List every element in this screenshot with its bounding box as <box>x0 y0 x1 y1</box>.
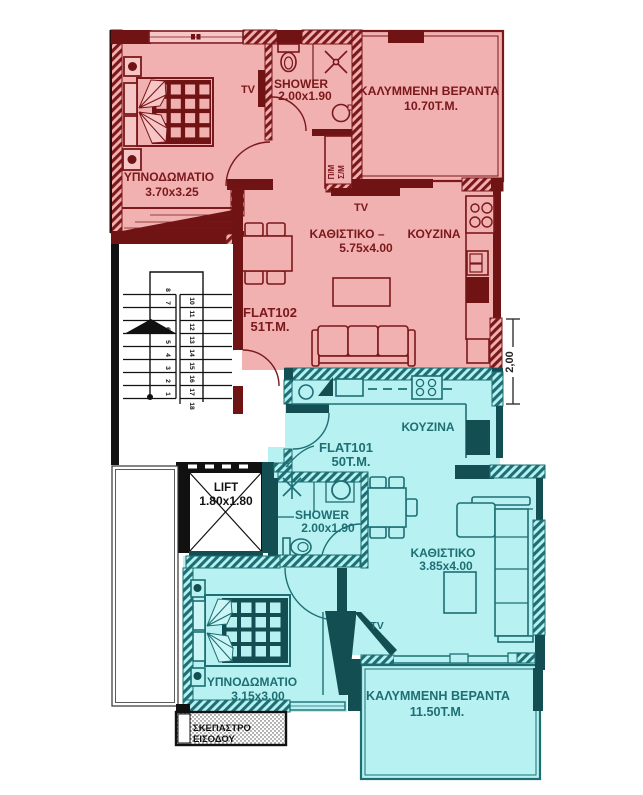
svg-text:5: 5 <box>164 340 171 344</box>
svg-text:TV: TV <box>370 620 383 632</box>
svg-text:12: 12 <box>188 323 195 331</box>
svg-text:10.70Τ.Μ.: 10.70Τ.Μ. <box>404 99 458 113</box>
svg-text:15: 15 <box>188 362 195 370</box>
svg-text:ΚΑΛΥΜΜΕΝΗ ΒΕΡΑΝΤΑ: ΚΑΛΥΜΜΕΝΗ ΒΕΡΑΝΤΑ <box>359 84 500 98</box>
svg-text:3.70x3.25: 3.70x3.25 <box>145 185 199 199</box>
svg-text:51Τ.Μ.: 51Τ.Μ. <box>250 319 289 334</box>
svg-text:2: 2 <box>164 379 171 383</box>
svg-text:17: 17 <box>188 388 195 396</box>
svg-text:ΣΚΕΠΑΣΤΡΟ: ΣΚΕΠΑΣΤΡΟ <box>193 723 251 734</box>
svg-text:5.75x4.00: 5.75x4.00 <box>339 241 393 255</box>
svg-text:ΕΙΣΟΔΟΥ: ΕΙΣΟΔΟΥ <box>193 734 236 745</box>
svg-text:Σ/Μ: Σ/Μ <box>337 165 346 179</box>
svg-text:16: 16 <box>188 375 195 383</box>
svg-text:11.50Τ.Μ.: 11.50Τ.Μ. <box>410 705 465 719</box>
svg-text:ΚΑΘΙΣΤΙΚΟ –: ΚΑΘΙΣΤΙΚΟ – <box>310 227 385 241</box>
svg-text:TV: TV <box>241 84 256 96</box>
svg-text:ΥΠΝΟΔΩΜΑΤΙΟ: ΥΠΝΟΔΩΜΑΤΙΟ <box>124 170 214 184</box>
svg-text:8: 8 <box>164 288 171 292</box>
svg-text:18: 18 <box>188 402 195 410</box>
svg-text:FLAT102: FLAT102 <box>243 305 297 320</box>
svg-text:SHOWER: SHOWER <box>295 508 349 522</box>
svg-text:6: 6 <box>164 327 171 331</box>
svg-text:4: 4 <box>164 353 171 357</box>
svg-text:ΥΠΝΟΔΩΜΑΤΙΟ: ΥΠΝΟΔΩΜΑΤΙΟ <box>207 675 297 689</box>
svg-text:ΚΑΛΥΜΜΕΝΗ ΒΕΡΑΝΤΑ: ΚΑΛΥΜΜΕΝΗ ΒΕΡΑΝΤΑ <box>366 689 510 703</box>
svg-text:3: 3 <box>164 366 171 370</box>
svg-text:Π/Μ: Π/Μ <box>327 164 336 179</box>
svg-text:2,00: 2,00 <box>504 351 516 372</box>
svg-text:1.80x1.80: 1.80x1.80 <box>199 494 253 508</box>
svg-text:LIFT: LIFT <box>214 482 238 494</box>
svg-text:ΚΟΥΖΙΝΑ: ΚΟΥΖΙΝΑ <box>401 420 454 434</box>
svg-text:3.85x4.00: 3.85x4.00 <box>419 559 473 573</box>
svg-text:11: 11 <box>188 310 195 317</box>
svg-text:7: 7 <box>164 301 171 305</box>
svg-text:FLAT101: FLAT101 <box>319 440 373 455</box>
svg-text:ΚΟΥΖΙΝΑ: ΚΟΥΖΙΝΑ <box>407 227 460 241</box>
svg-text:ΚΑΘΙΣΤΙΚΟ: ΚΑΘΙΣΤΙΚΟ <box>411 546 476 560</box>
svg-text:10: 10 <box>188 297 195 305</box>
svg-text:2.00x1.90: 2.00x1.90 <box>301 521 355 535</box>
svg-text:50Τ.Μ.: 50Τ.Μ. <box>331 454 370 469</box>
svg-text:2.00x1.90: 2.00x1.90 <box>278 89 332 103</box>
svg-text:14: 14 <box>188 349 195 357</box>
svg-text:3.15x3.00: 3.15x3.00 <box>231 689 285 703</box>
svg-text:1: 1 <box>164 392 171 396</box>
svg-text:TV: TV <box>354 202 369 214</box>
svg-text:13: 13 <box>188 336 195 344</box>
